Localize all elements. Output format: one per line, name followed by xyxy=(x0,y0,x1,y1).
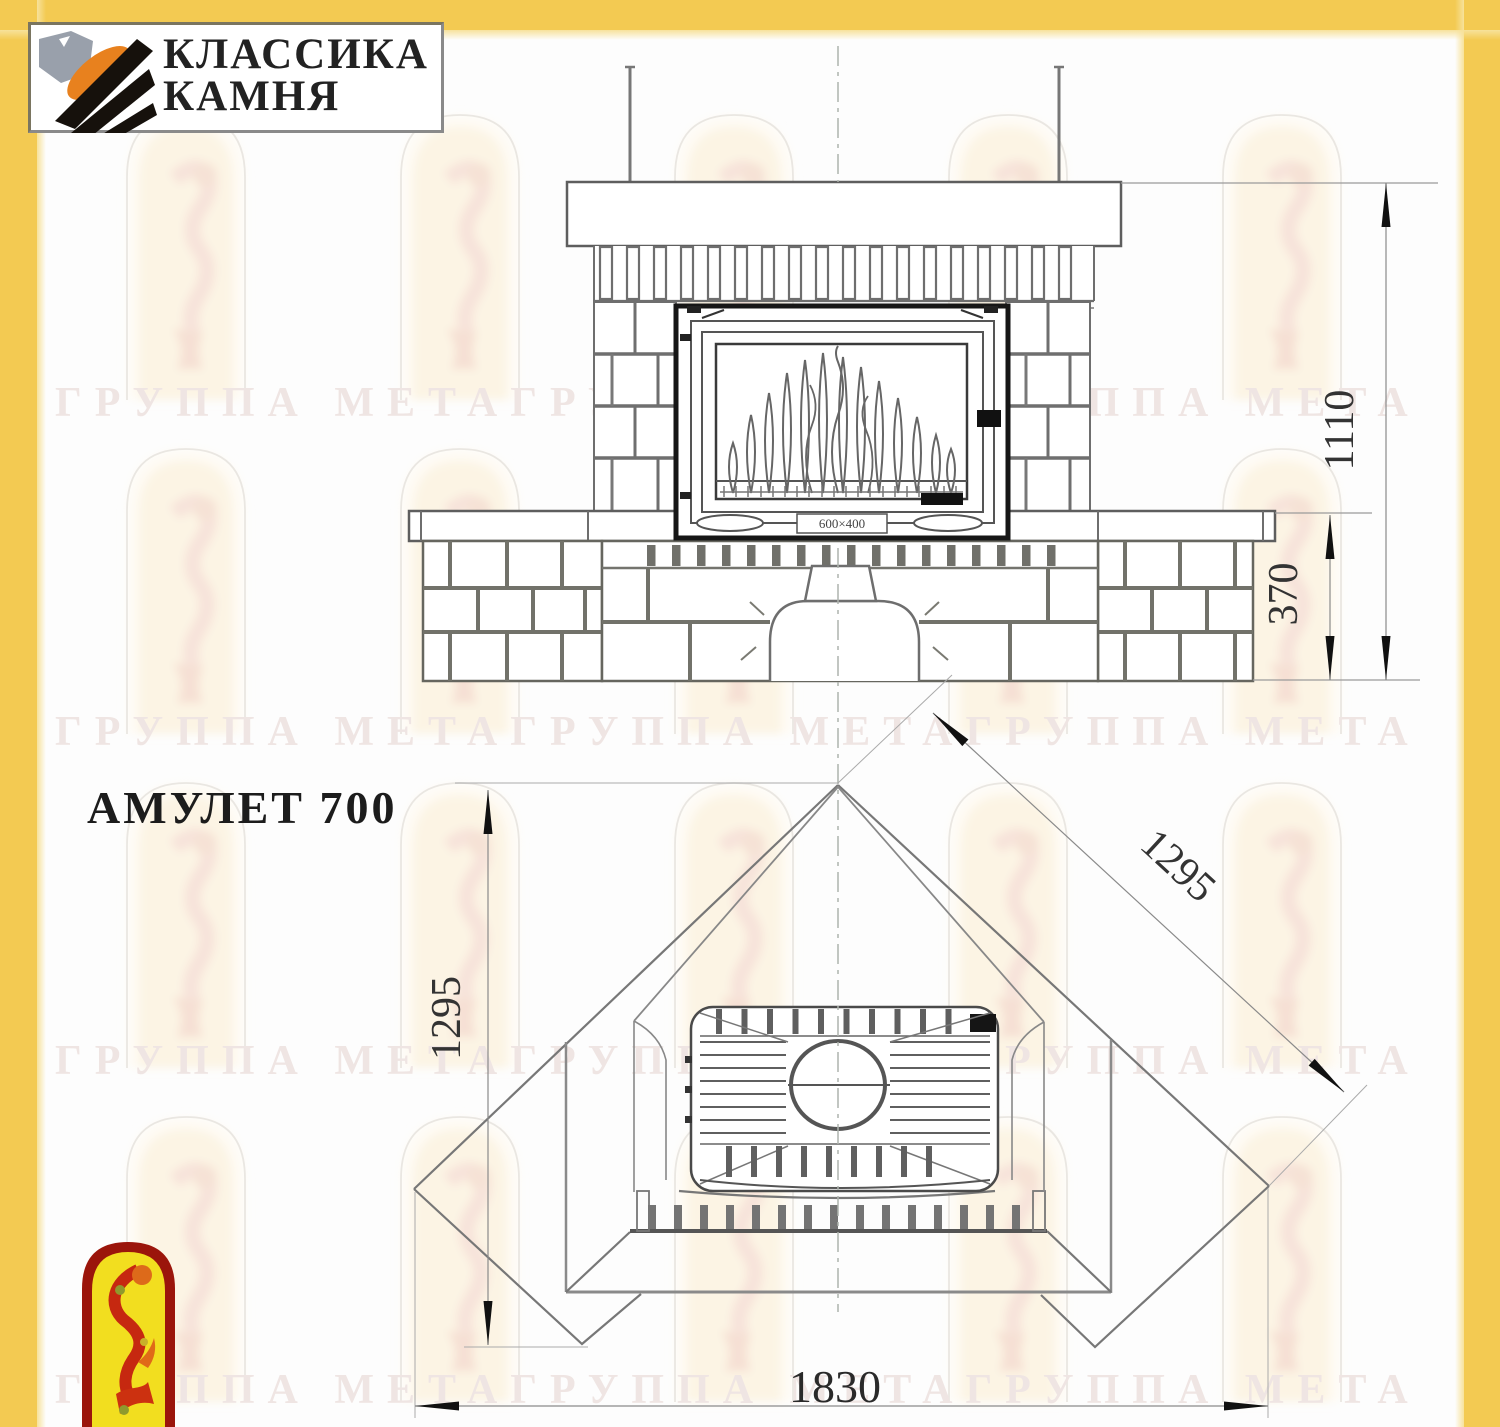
svg-text:600×400: 600×400 xyxy=(819,516,865,531)
svg-text:1830: 1830 xyxy=(789,1361,881,1412)
svg-text:1110: 1110 xyxy=(1317,390,1363,471)
svg-text:1295: 1295 xyxy=(424,976,470,1060)
svg-text:1295: 1295 xyxy=(1131,821,1224,912)
svg-text:370: 370 xyxy=(1261,563,1307,626)
svg-text:АМУЛЕТ 700: АМУЛЕТ 700 xyxy=(87,782,397,833)
